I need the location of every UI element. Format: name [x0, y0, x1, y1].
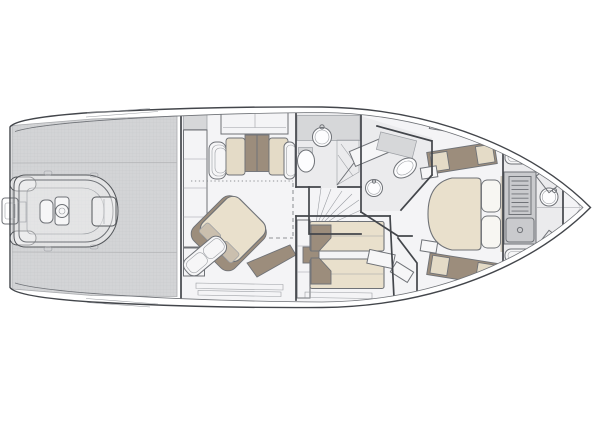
tender	[2, 171, 118, 251]
bench-stbd-cushion-1	[430, 255, 450, 275]
crew-wash-basin	[540, 188, 558, 206]
sofa-cushion-left	[226, 138, 245, 175]
sofa-armrest-right	[284, 142, 295, 179]
crew-berth-starboard	[505, 249, 535, 262]
bench-port-cushion-2	[475, 144, 495, 164]
vip-round-sink	[366, 180, 383, 197]
toilet	[298, 150, 315, 172]
garage-door-seam-fwd	[12, 252, 177, 253]
vip-side-table-starboard	[420, 240, 438, 253]
helm-console	[55, 197, 69, 225]
vip-island-bed	[428, 178, 481, 250]
interior	[180, 105, 593, 320]
vip-pillow-port	[482, 180, 501, 212]
vip-pillow-starboard	[482, 216, 501, 248]
round-sink	[313, 128, 332, 147]
sofa-armrest-left	[209, 142, 226, 179]
yacht-deck-plan	[0, 0, 600, 425]
jockey-seat	[40, 200, 53, 223]
garage-door-seam-aft	[12, 163, 177, 164]
deck-plan-canvas	[0, 0, 600, 425]
